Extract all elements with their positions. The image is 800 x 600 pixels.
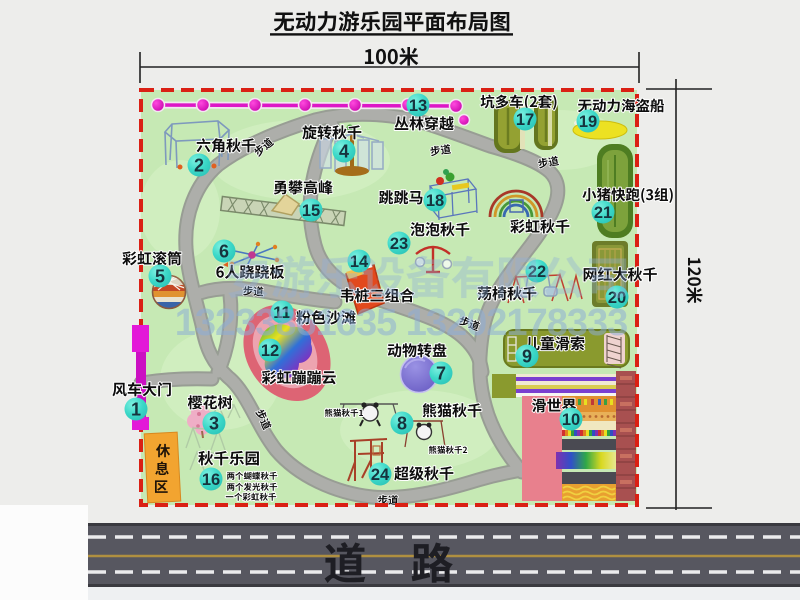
svg-text:10: 10 — [562, 411, 580, 429]
svg-text:3: 3 — [209, 414, 219, 434]
svg-text:17: 17 — [516, 111, 534, 129]
svg-text:4: 4 — [339, 142, 349, 162]
svg-text:21: 21 — [594, 204, 612, 222]
svg-text:9: 9 — [522, 347, 532, 367]
svg-text:13: 13 — [409, 97, 427, 115]
svg-text:8: 8 — [397, 414, 407, 434]
svg-text:1: 1 — [131, 400, 141, 420]
svg-text:23: 23 — [390, 235, 408, 253]
svg-text:5: 5 — [155, 267, 165, 287]
svg-text:16: 16 — [202, 471, 220, 489]
svg-text:15: 15 — [302, 202, 320, 220]
svg-text:7: 7 — [436, 364, 446, 384]
svg-text:13233861635 13202178333: 13233861635 13202178333 — [175, 302, 628, 344]
svg-text:18: 18 — [426, 192, 444, 210]
svg-text:14: 14 — [350, 253, 369, 271]
svg-text:6: 6 — [219, 242, 229, 262]
svg-text:19: 19 — [579, 113, 597, 131]
svg-text:12: 12 — [261, 342, 279, 360]
svg-text:2: 2 — [194, 156, 204, 176]
svg-text:24: 24 — [371, 466, 390, 484]
